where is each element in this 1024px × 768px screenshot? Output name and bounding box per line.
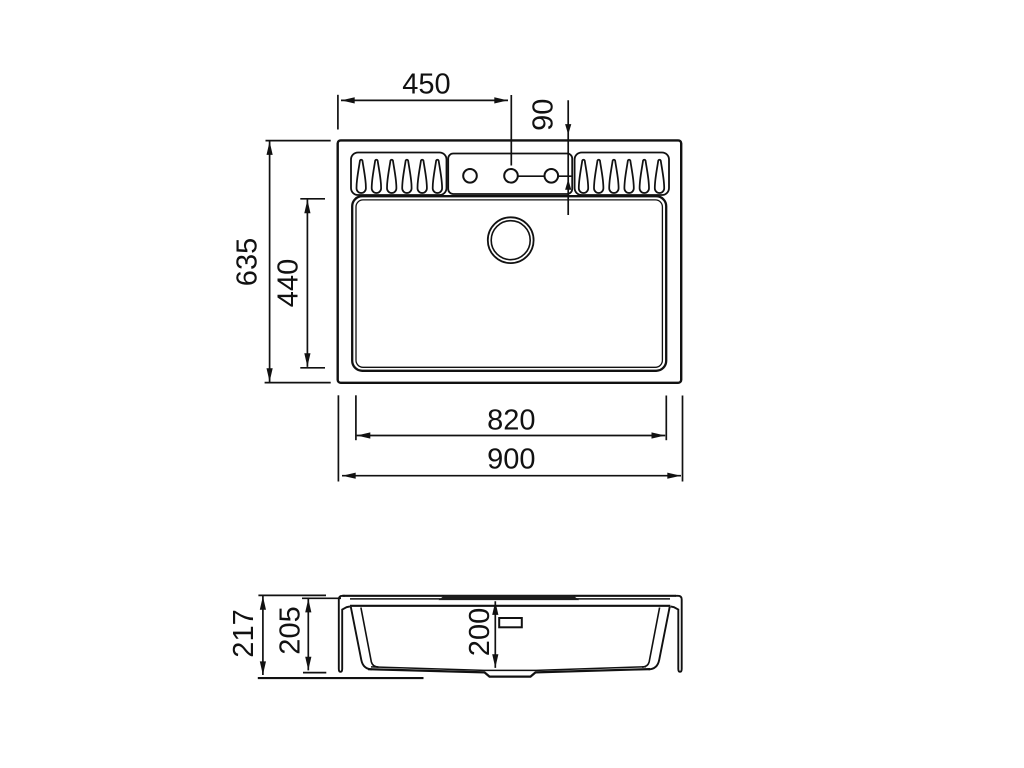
svg-text:900: 900	[487, 444, 535, 476]
svg-text:450: 450	[402, 69, 450, 101]
svg-text:217: 217	[228, 609, 260, 657]
svg-text:440: 440	[273, 259, 305, 307]
svg-text:635: 635	[232, 238, 264, 286]
svg-text:200: 200	[464, 608, 496, 656]
svg-text:820: 820	[487, 405, 535, 437]
svg-text:90: 90	[528, 99, 560, 131]
svg-text:205: 205	[275, 606, 307, 654]
